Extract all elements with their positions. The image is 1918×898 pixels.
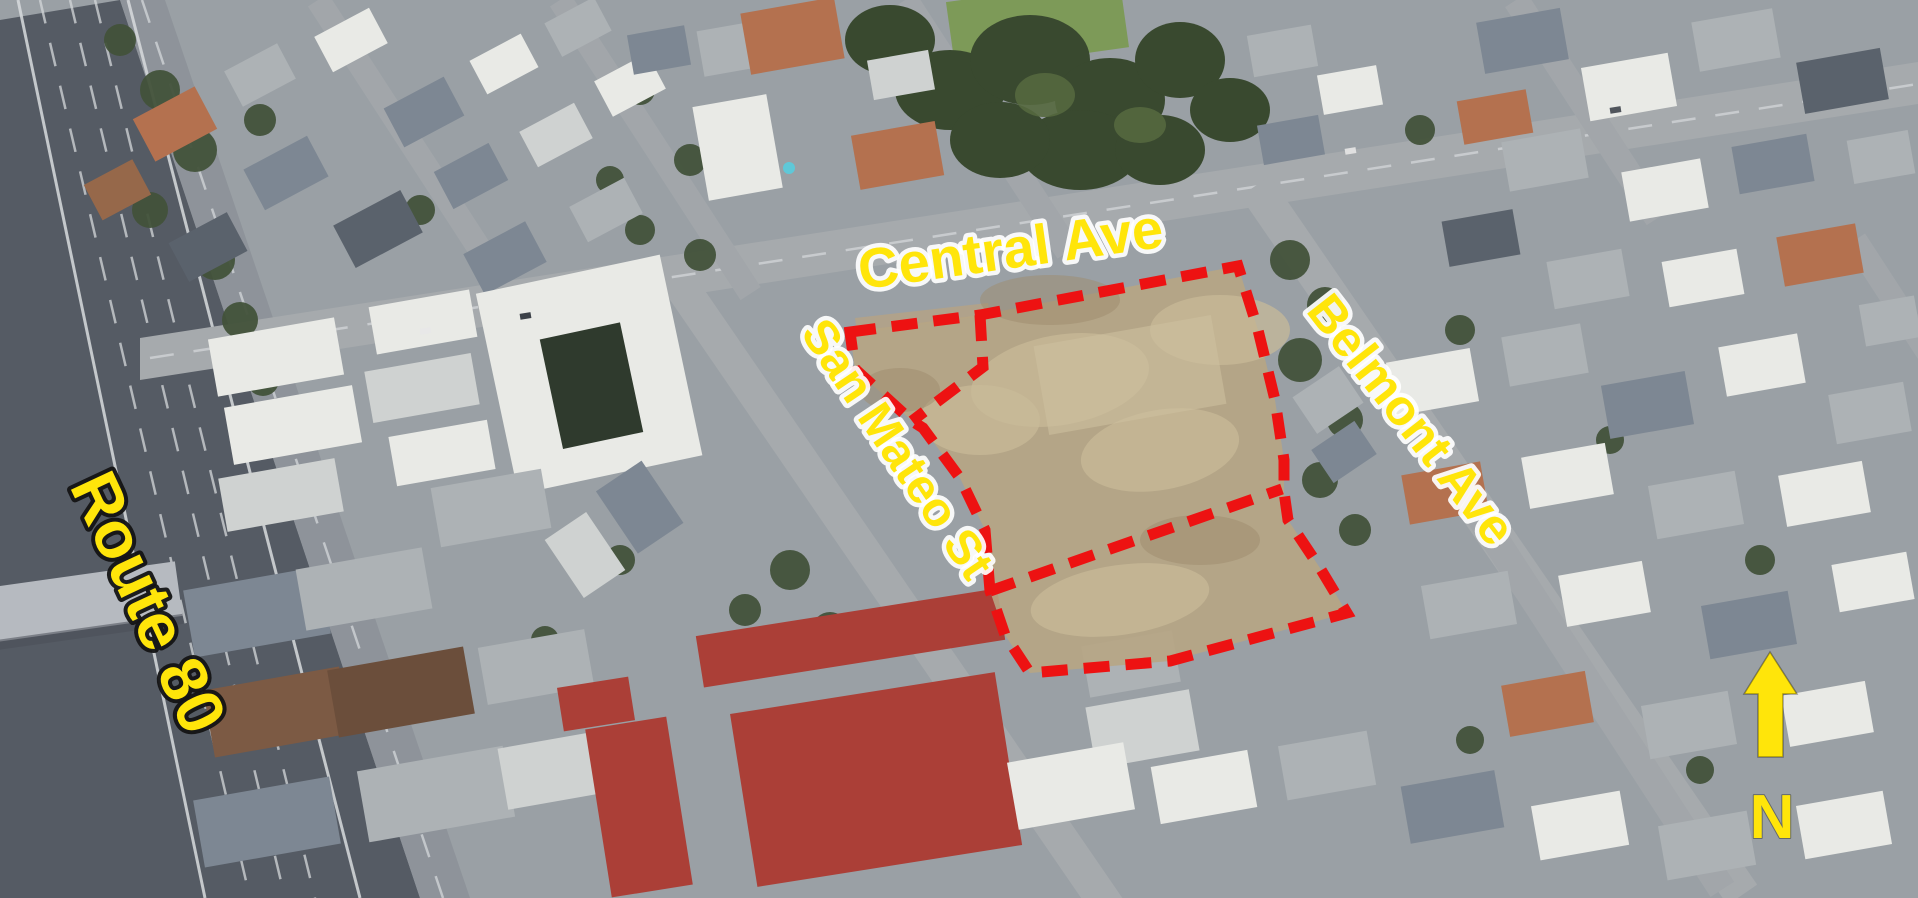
tree xyxy=(1270,240,1310,280)
tree xyxy=(1445,315,1475,345)
swimming-pool xyxy=(783,162,795,174)
dirt-patch xyxy=(980,275,1120,325)
tree-mass xyxy=(1015,73,1075,117)
tree xyxy=(1745,545,1775,575)
tree xyxy=(1278,338,1322,382)
north-arrow-letter: N xyxy=(1750,783,1795,852)
tree xyxy=(1686,756,1714,784)
tree xyxy=(684,239,716,271)
tree-mass xyxy=(1114,107,1166,143)
aerial-map: Route 80 Central Ave San Mateo St Belmon… xyxy=(0,0,1918,898)
tree xyxy=(1456,726,1484,754)
tree-mass xyxy=(1190,78,1270,142)
tree xyxy=(1405,115,1435,145)
tree xyxy=(104,24,136,56)
tree xyxy=(244,104,276,136)
tree xyxy=(1339,514,1371,546)
tree xyxy=(770,550,810,590)
tree xyxy=(729,594,761,626)
